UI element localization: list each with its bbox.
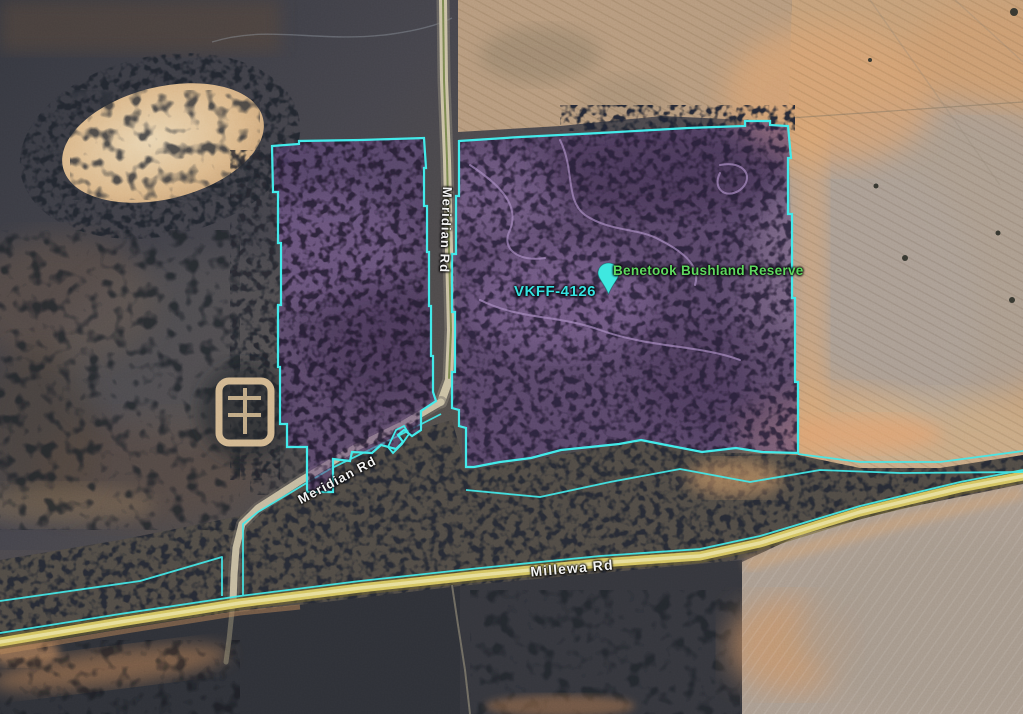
reserve-code-label[interactable]: VKFF-4126 bbox=[514, 283, 596, 300]
map-viewport[interactable]: Benetook Bushland Reserve VKFF-4126 Meri… bbox=[0, 0, 1023, 714]
meridian-rd-label-north: Meridian Rd bbox=[437, 187, 455, 274]
reserve-name-label[interactable]: Benetook Bushland Reserve bbox=[613, 263, 804, 278]
satellite-imagery bbox=[0, 0, 1023, 714]
